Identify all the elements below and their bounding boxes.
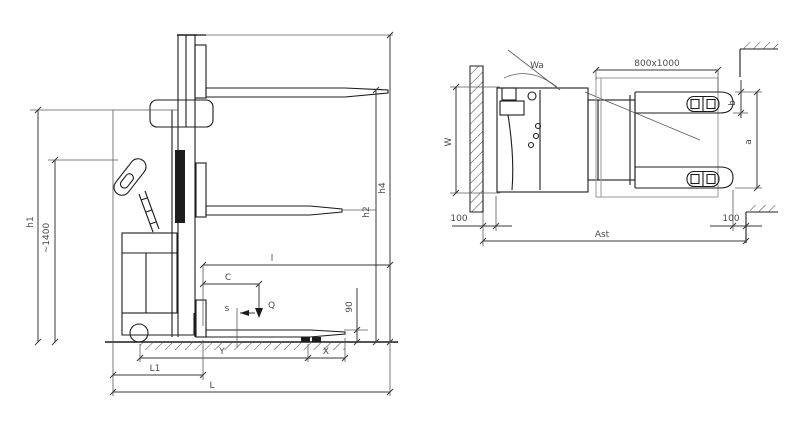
dim-label-100-right: 100: [722, 214, 739, 224]
side-view: h1 ~1400 h4 h2 90: [26, 32, 398, 396]
carriage-mid: [196, 163, 206, 217]
dim-label-tiller-height: ~1400: [42, 223, 52, 254]
tandem-wheels-upper: [687, 97, 719, 112]
dim-pallet-size: 800x1000: [593, 59, 721, 92]
drive-wheel: [130, 324, 148, 342]
tiller-base: [500, 101, 524, 115]
dim-fork-spread: a: [735, 89, 762, 191]
tiller-mount: [502, 88, 516, 100]
dim-label-90: 90: [345, 301, 355, 313]
dim-lowered-fork-height: 90: [344, 288, 368, 345]
carriage-raised: [195, 45, 206, 98]
dim-label-wa: Wa: [530, 61, 544, 71]
dim-label-b: b: [728, 100, 738, 106]
mast-top-view: [588, 100, 635, 180]
chassis: [122, 313, 194, 335]
body-top-outline: [497, 88, 588, 192]
dim-label-l: l: [271, 254, 274, 264]
carriage-lowered: [196, 300, 206, 337]
wall-corner-top-right: [740, 42, 778, 77]
lift-cylinder: [175, 150, 185, 223]
pallet-outline: [596, 78, 718, 197]
dim-label-ast: Ast: [595, 230, 610, 240]
ground-hatch: [140, 343, 345, 350]
dim-label-overall-length: L: [209, 381, 214, 391]
dim-label-q: Q: [268, 301, 275, 311]
dim-aisle-width: Ast: [480, 230, 749, 244]
dim-tiller-height: ~1400: [42, 157, 118, 345]
pivot-hole: [528, 92, 536, 100]
fork-mid: [206, 206, 342, 215]
tandem-wheels-lower: [687, 172, 719, 187]
dim-h2: h2: [362, 87, 379, 345]
fork-lowered: [206, 330, 345, 337]
dim-label-y: Y: [218, 347, 225, 357]
mast-crosshead: [150, 100, 213, 127]
dim-label-h1: h1: [26, 216, 36, 227]
detail-hole-2: [534, 134, 539, 139]
drawing-canvas: h1 ~1400 h4 h2 90: [0, 0, 800, 434]
dim-label-x: X: [323, 347, 329, 357]
wall-corner-bottom-right: [746, 205, 778, 243]
dim-label-100-left: 100: [450, 214, 467, 224]
dim-h4: h4: [197, 32, 393, 345]
dim-label-l1: L1: [150, 364, 161, 374]
load-wheel-2: [312, 337, 321, 342]
fork-raised: [206, 88, 388, 97]
dim-fork-length: l: [200, 254, 393, 326]
dim-fork-width: b: [728, 80, 748, 118]
tiller-swing-arc: [508, 115, 513, 190]
dim-label-c: C: [225, 273, 231, 283]
dim-label-h4: h4: [378, 182, 388, 194]
dim-label-s: s: [225, 304, 230, 314]
top-view: W Wa: [444, 42, 778, 246]
load-arrow: [255, 308, 263, 318]
dim-label-pallet-size: 800x1000: [634, 59, 680, 69]
load-wheel-1: [301, 337, 310, 342]
tiller-head: [111, 156, 149, 199]
wall-left: [470, 66, 483, 212]
dim-label-w: W: [444, 137, 454, 146]
dim-label-h2: h2: [362, 206, 372, 217]
stacker-dimension-drawing: h1 ~1400 h4 h2 90: [0, 0, 800, 434]
detail-hole-3: [529, 143, 534, 148]
dim-load-center: C Q: [200, 273, 275, 318]
body-box: [122, 233, 177, 313]
dim-label-a: a: [744, 139, 754, 145]
